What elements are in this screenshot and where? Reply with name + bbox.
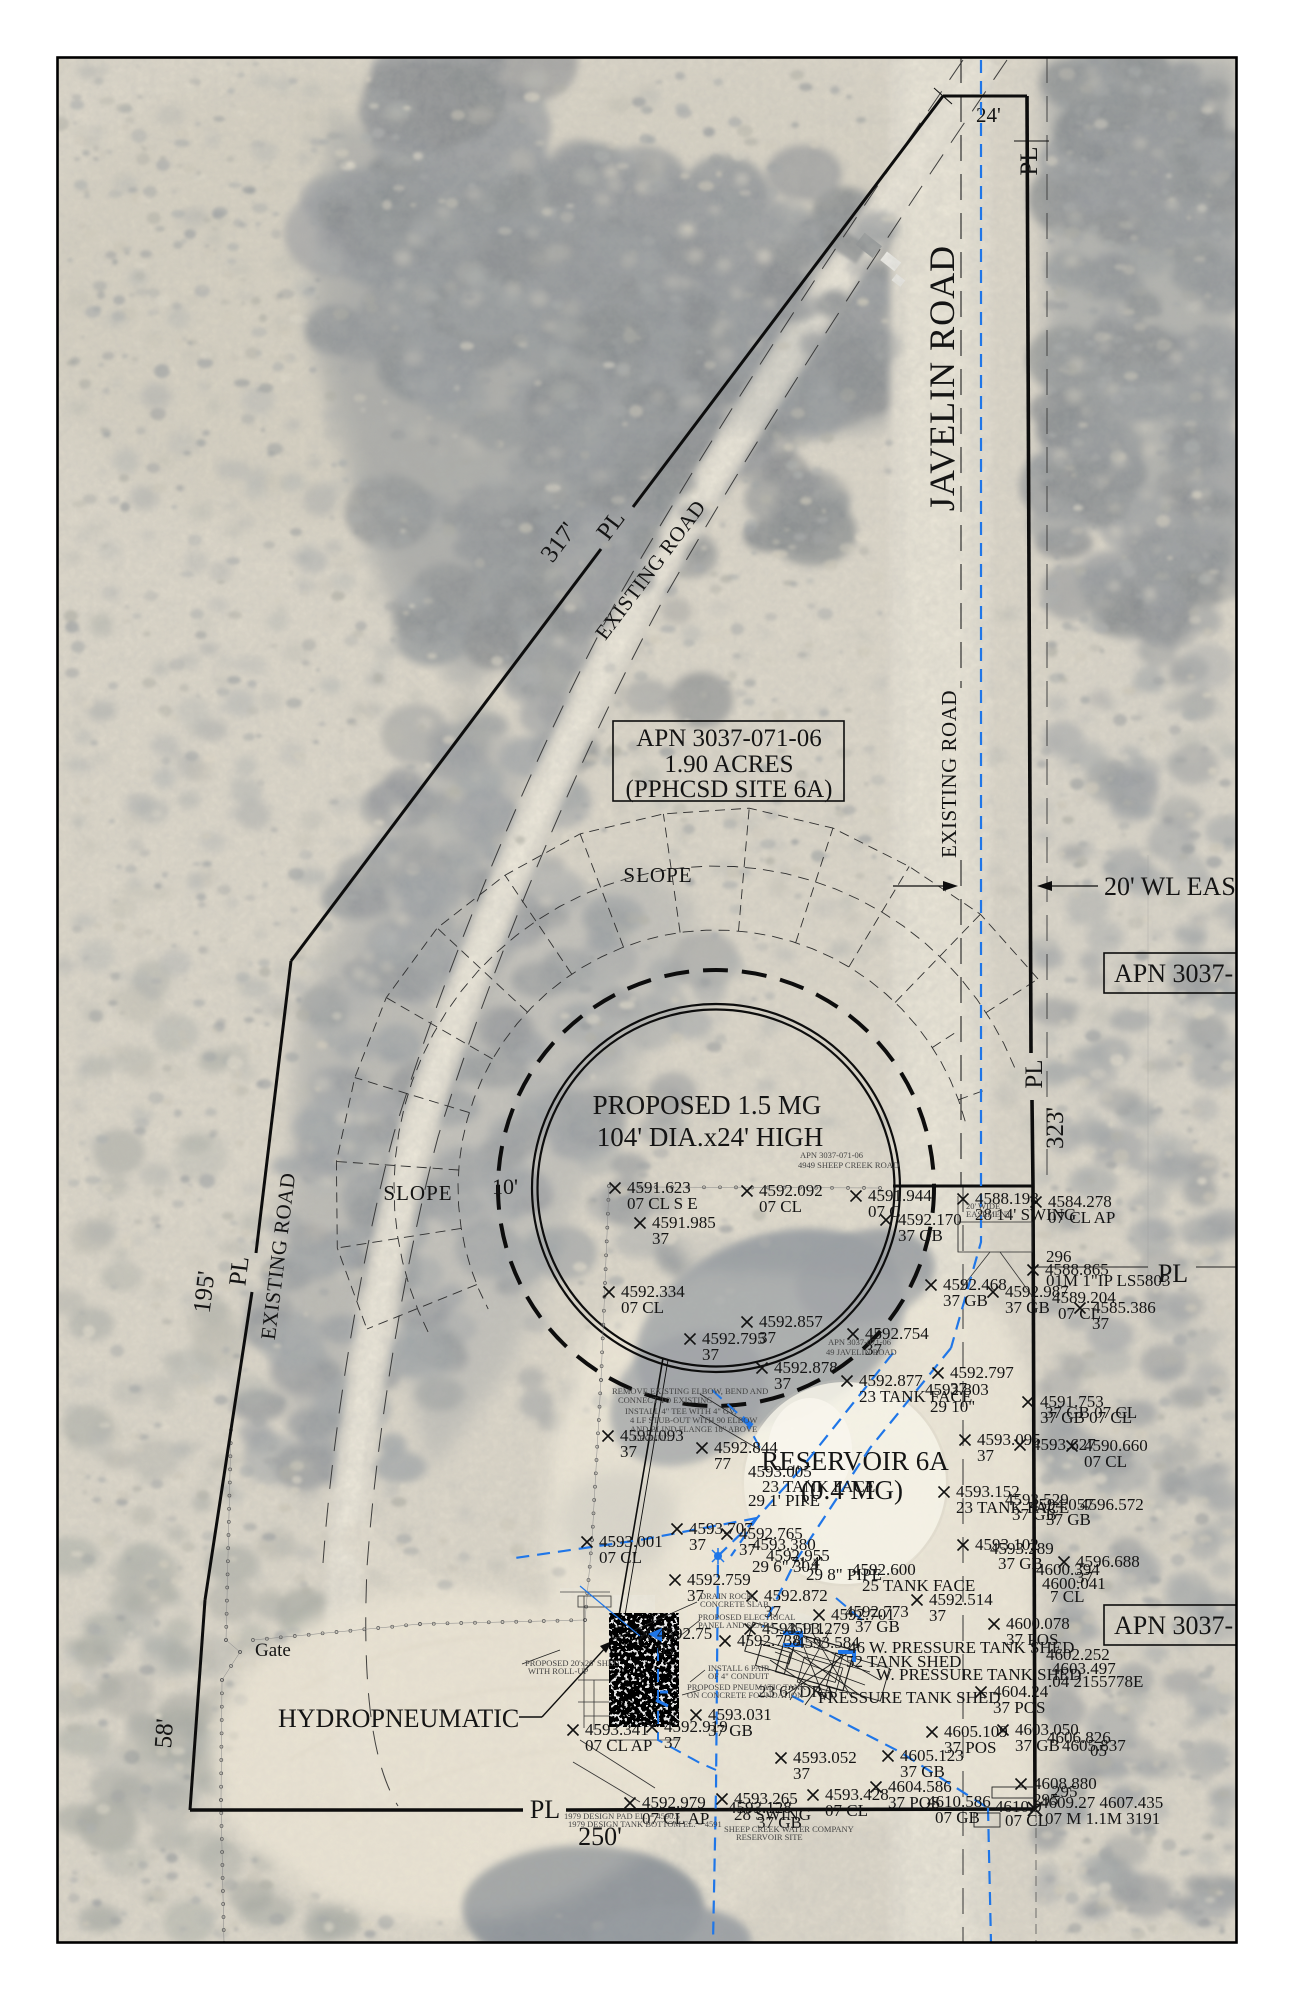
svg-text:PL: PL xyxy=(224,1255,254,1287)
svg-text:37: 37 xyxy=(689,1535,707,1554)
svg-text:PL: PL xyxy=(1021,1059,1048,1088)
svg-text:37 GB: 37 GB xyxy=(1046,1510,1091,1529)
svg-text:APN 3037-1: APN 3037-1 xyxy=(1114,1611,1246,1640)
svg-text:ON CONCRETE FOUNDATION: ON CONCRETE FOUNDATION xyxy=(687,1690,803,1700)
svg-text:SLOPE: SLOPE xyxy=(623,863,692,887)
svg-text:37: 37 xyxy=(759,1328,777,1347)
svg-text:07 CL AP: 07 CL AP xyxy=(585,1736,652,1755)
svg-text:37 GB: 37 GB xyxy=(943,1291,988,1310)
svg-text:07 CL AP: 07 CL AP xyxy=(1048,1208,1115,1227)
svg-text:GROUND: GROUND xyxy=(633,1433,669,1443)
svg-text:PRESSURE TANK SHED: PRESSURE TANK SHED xyxy=(818,1688,1001,1707)
svg-text:PANEL AND SCADA: PANEL AND SCADA xyxy=(698,1620,776,1630)
svg-text:EXISTING ROAD: EXISTING ROAD xyxy=(937,690,961,858)
svg-text:1.90 ACRES: 1.90 ACRES xyxy=(664,751,793,778)
svg-text:WITH ROLL-UP: WITH ROLL-UP xyxy=(528,1666,588,1676)
svg-text:.04 2155778E: .04 2155778E xyxy=(1048,1672,1143,1691)
svg-text:49 JAVELIN ROAD: 49 JAVELIN ROAD xyxy=(826,1347,897,1357)
svg-text:7 CL: 7 CL xyxy=(1050,1587,1084,1606)
svg-text:29 1' PIPE: 29 1' PIPE xyxy=(748,1491,820,1510)
svg-text:(PPHCSD SITE 6A): (PPHCSD SITE 6A) xyxy=(626,776,833,803)
svg-text:37 POS: 37 POS xyxy=(993,1698,1045,1717)
svg-text:07 CL S E: 07 CL S E xyxy=(627,1194,698,1213)
svg-text:20' WL EASE: 20' WL EASE xyxy=(1104,872,1252,901)
svg-text:PROPOSED 1.5 MG: PROPOSED 1.5 MG xyxy=(593,1090,822,1120)
svg-text:37: 37 xyxy=(702,1345,720,1364)
svg-text:HYDROPNEUMATIC: HYDROPNEUMATIC xyxy=(278,1704,519,1733)
svg-text:07 CL: 07 CL xyxy=(621,1298,664,1317)
svg-text:EASEMENT: EASEMENT xyxy=(966,1209,1012,1219)
svg-text:4949 SHEEP CREEK ROAD: 4949 SHEEP CREEK ROAD xyxy=(798,1160,899,1170)
svg-text:JAVELIN ROAD: JAVELIN ROAD xyxy=(922,245,962,511)
svg-text:296: 296 xyxy=(1046,1247,1072,1266)
svg-text:24': 24' xyxy=(976,103,1001,127)
svg-text:37 GB: 37 GB xyxy=(898,1226,943,1245)
svg-text:PL: PL xyxy=(530,1795,560,1824)
svg-text:295: 295 xyxy=(1052,1782,1078,1801)
svg-text:07 CL: 07 CL xyxy=(599,1548,642,1567)
svg-text:37: 37 xyxy=(652,1229,670,1248)
svg-text:37: 37 xyxy=(793,1764,811,1783)
svg-text:37 POS: 37 POS xyxy=(944,1738,996,1757)
svg-text:323': 323' xyxy=(1042,1107,1069,1149)
svg-text:37: 37 xyxy=(664,1733,682,1752)
svg-text:Gate: Gate xyxy=(255,1640,291,1661)
svg-text:77: 77 xyxy=(714,1454,732,1473)
svg-text:07 CL: 07 CL xyxy=(1084,1452,1127,1471)
svg-text:37 GB: 37 GB xyxy=(1005,1298,1050,1317)
svg-text:07 GB: 07 GB xyxy=(935,1808,980,1827)
svg-text:APN 3037-071-06: APN 3037-071-06 xyxy=(636,725,821,752)
svg-text:07 CL: 07 CL xyxy=(1058,1304,1101,1323)
svg-text:4605.837: 4605.837 xyxy=(1062,1736,1126,1755)
svg-text:58': 58' xyxy=(150,1718,179,1749)
svg-text:CONCRETE SLAB: CONCRETE SLAB xyxy=(700,1599,769,1609)
svg-text:29 10": 29 10" xyxy=(930,1397,975,1416)
svg-text:PL: PL xyxy=(1016,146,1043,175)
svg-text:37: 37 xyxy=(774,1374,792,1393)
svg-text:SLOPE: SLOPE xyxy=(383,1181,452,1205)
svg-text:37: 37 xyxy=(620,1442,638,1461)
svg-text:07 CL: 07 CL xyxy=(759,1197,802,1216)
svg-text:CONNECT TO EXISTING: CONNECT TO EXISTING xyxy=(618,1395,712,1405)
svg-text:APN 3037-071-06: APN 3037-071-06 xyxy=(800,1150,863,1160)
svg-text:07 CL: 07 CL xyxy=(1005,1811,1048,1830)
svg-text:1979 DESIGN TANK BOTTOM EL. =: 1979 DESIGN TANK BOTTOM EL. = 4591 xyxy=(568,1819,722,1829)
svg-text:APN 3037-071-06: APN 3037-071-06 xyxy=(828,1337,891,1347)
svg-text:25 TANK FACE: 25 TANK FACE xyxy=(862,1576,975,1595)
svg-text:195': 195' xyxy=(189,1270,221,1315)
svg-text:37 GB 07 CL: 37 GB 07 CL xyxy=(1045,1403,1137,1422)
svg-text:10': 10' xyxy=(492,1174,518,1199)
svg-text:37: 37 xyxy=(929,1606,947,1625)
svg-text:OF 4" CONDUIT: OF 4" CONDUIT xyxy=(708,1671,770,1681)
svg-text:APN 3037-1: APN 3037-1 xyxy=(1114,959,1246,988)
svg-text:07 M 1.1M 3191: 07 M 1.1M 3191 xyxy=(1045,1809,1160,1828)
svg-text:RESERVOIR SITE: RESERVOIR SITE xyxy=(736,1832,803,1842)
svg-text:03: 03 xyxy=(657,1640,674,1659)
svg-text:37 GB: 37 GB xyxy=(855,1617,900,1636)
svg-text:104' DIA.x24' HIGH: 104' DIA.x24' HIGH xyxy=(597,1122,823,1152)
svg-text:07 CL: 07 CL xyxy=(825,1801,868,1820)
svg-text:37: 37 xyxy=(977,1446,995,1465)
